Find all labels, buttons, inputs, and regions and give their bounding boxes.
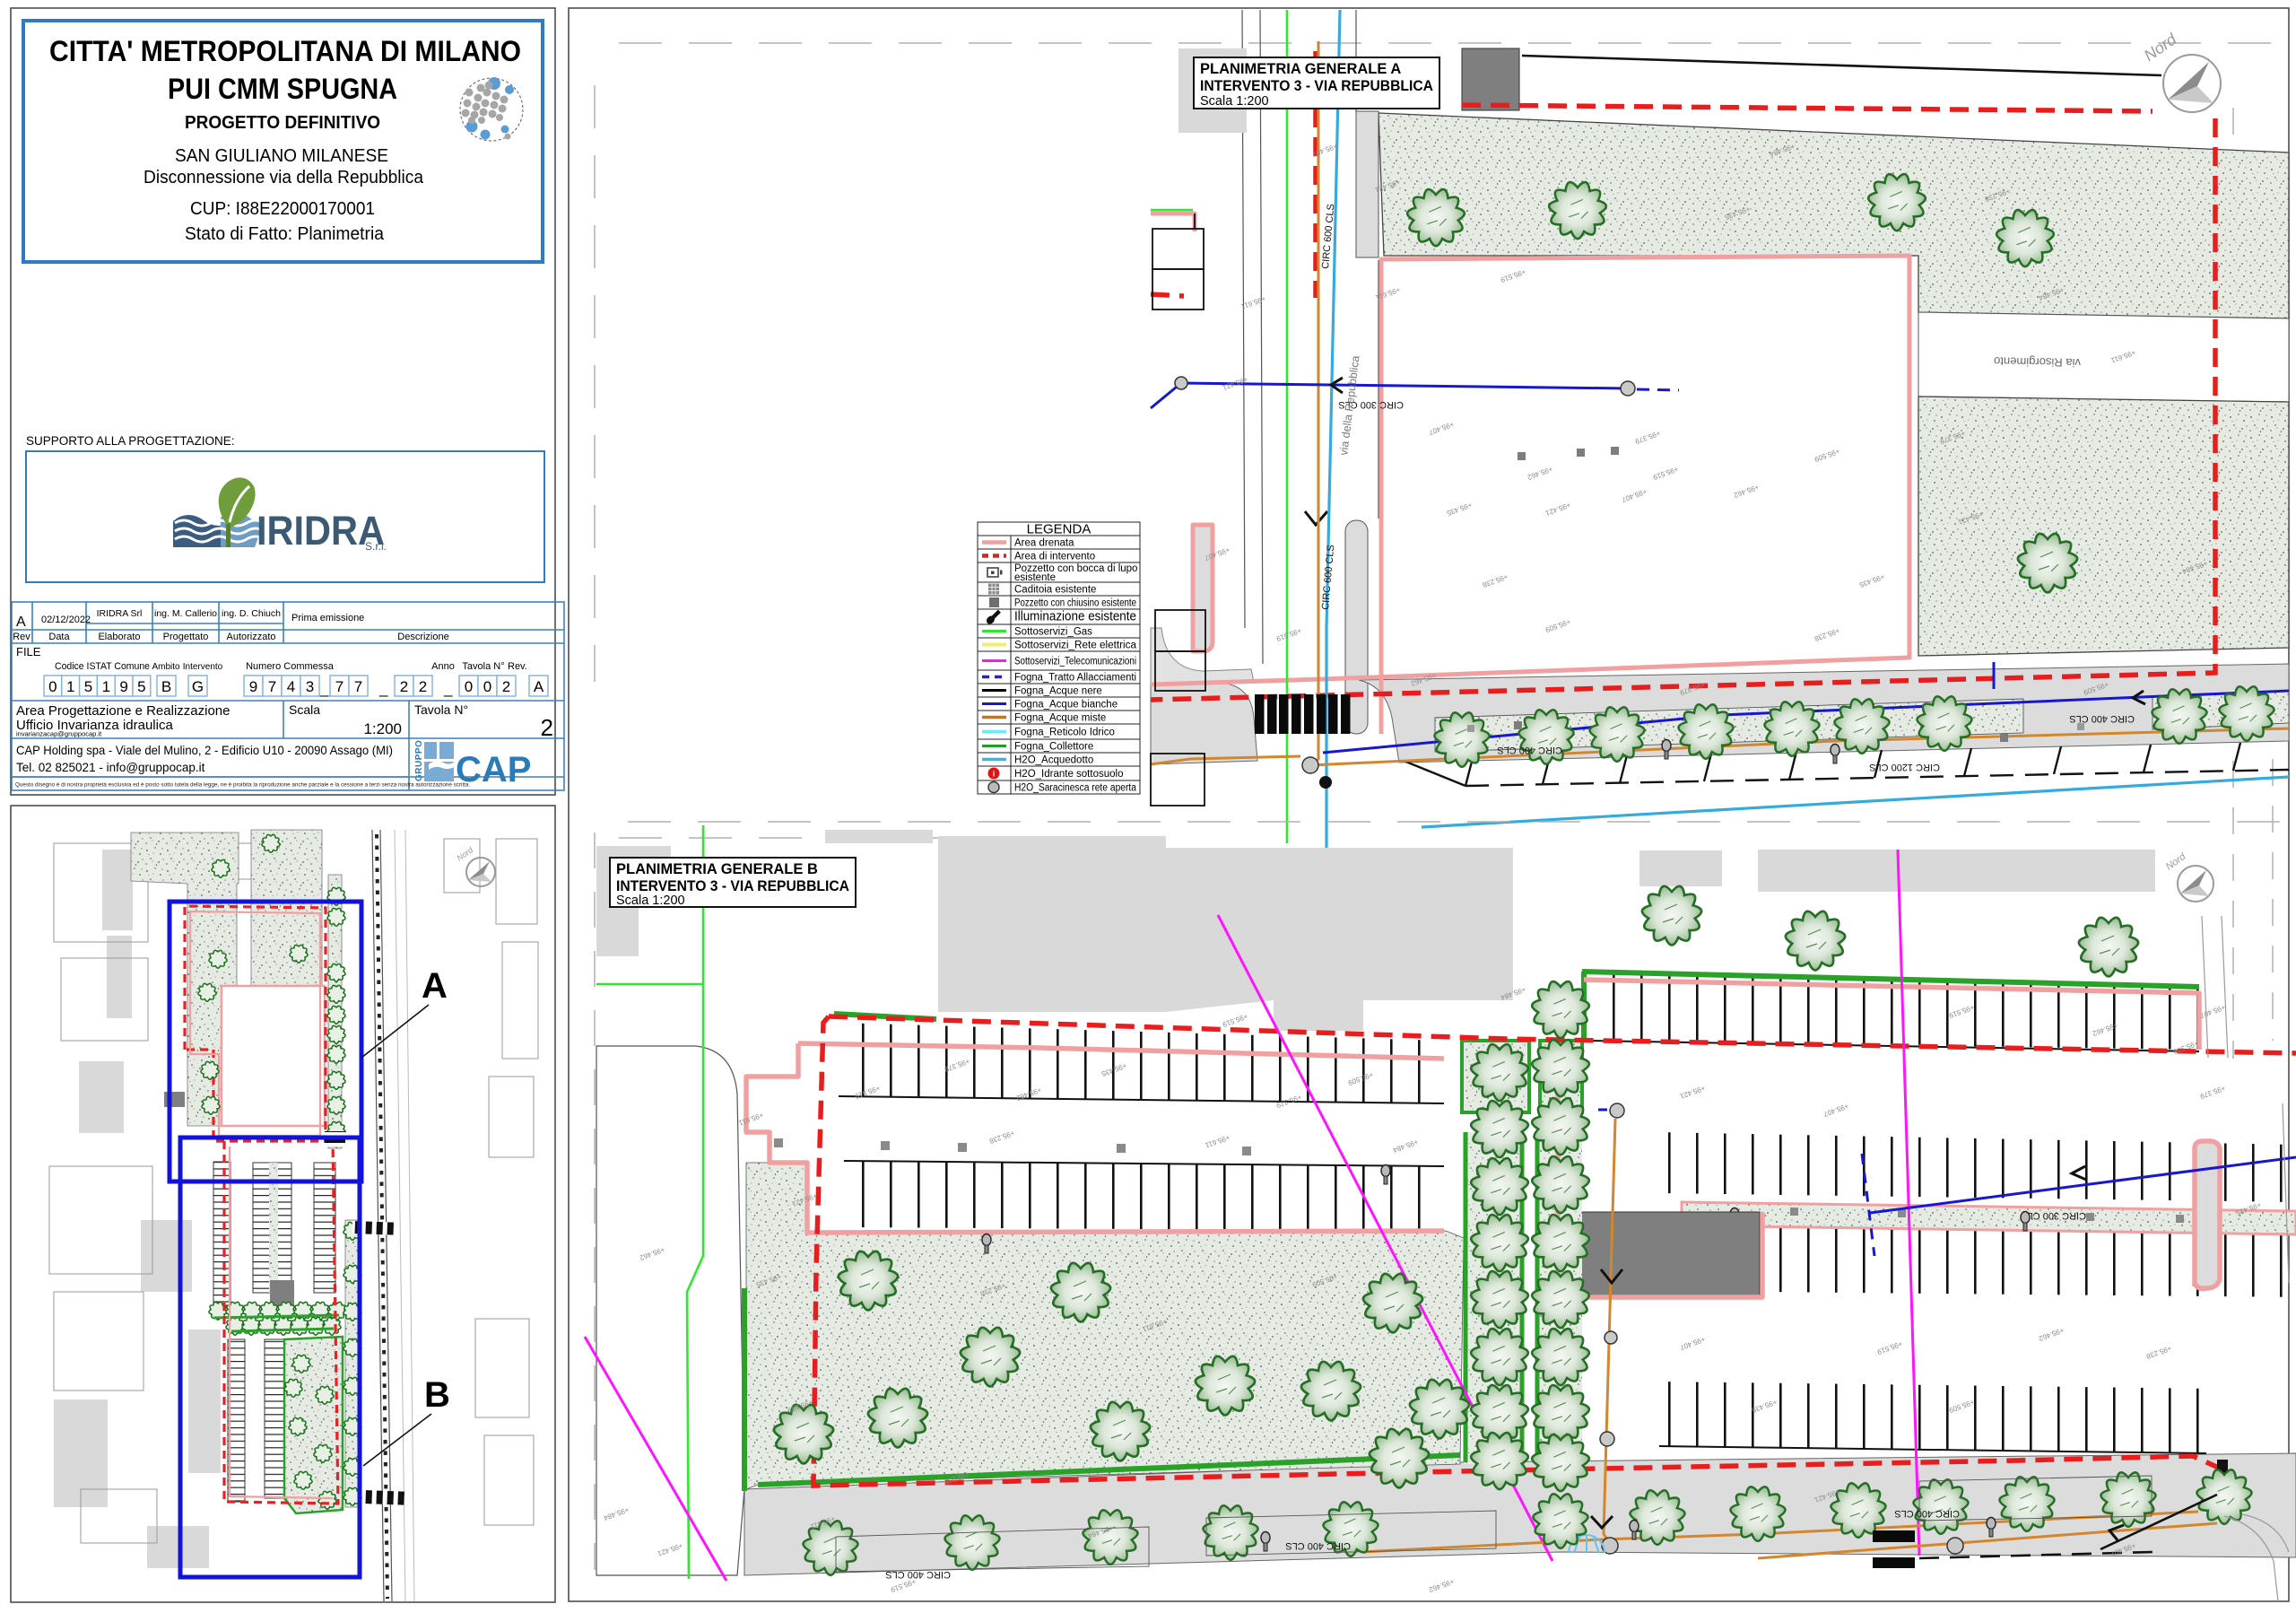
svg-text:9: 9 — [249, 678, 257, 695]
svg-text:Area Progettazione e Realizzaz: Area Progettazione e Realizzazione — [16, 703, 230, 719]
svg-text:Scala 1:200: Scala 1:200 — [616, 894, 685, 908]
svg-text:esistente: esistente — [1014, 572, 1056, 583]
svg-text:A: A — [534, 678, 544, 695]
svg-text:5: 5 — [137, 678, 145, 695]
svg-text:B: B — [424, 1375, 450, 1415]
svg-text:0: 0 — [465, 678, 473, 695]
svg-text:Prima emissione: Prima emissione — [291, 613, 364, 623]
svg-text:CIRC 300 CLS: CIRC 300 CLS — [2021, 1210, 2086, 1221]
svg-text:Area di intervento: Area di intervento — [1014, 552, 1095, 562]
svg-text:H2O_Saracinesca rete aperta: H2O_Saracinesca rete aperta — [1014, 783, 1137, 794]
svg-text:Illuminazione esistente: Illuminazione esistente — [1014, 610, 1136, 624]
svg-text:B: B — [161, 678, 171, 695]
svg-text:Intervento: Intervento — [183, 662, 223, 672]
svg-text:CIRC 400 CLS: CIRC 400 CLS — [1285, 1540, 1351, 1551]
svg-text:A: A — [16, 615, 26, 630]
svg-text:FILE: FILE — [16, 645, 41, 658]
svg-text:INTERVENTO 3 - VIA REPUBBLICA: INTERVENTO 3 - VIA REPUBBLICA — [1200, 78, 1433, 94]
svg-text:ing. M. Callerio: ing. M. Callerio — [154, 608, 217, 619]
svg-text:SUPPORTO ALLA PROGETTAZIONE:: SUPPORTO ALLA PROGETTAZIONE: — [26, 434, 235, 448]
svg-text:Autorizzato: Autorizzato — [226, 632, 275, 642]
svg-text:Sottoservizi_Telecomunicazioni: Sottoservizi_Telecomunicazioni — [1014, 657, 1136, 667]
svg-text:7: 7 — [268, 678, 276, 695]
svg-text:2: 2 — [400, 678, 408, 695]
svg-text:_: _ — [443, 680, 453, 697]
svg-text:Scala 1:200: Scala 1:200 — [1200, 94, 1269, 109]
svg-text:Fogna_Acque nere: Fogna_Acque nere — [1014, 686, 1102, 697]
svg-text:Data: Data — [48, 632, 70, 642]
svg-text:CAP Holding spa - Viale del Mu: CAP Holding spa - Viale del Mulino, 2 - … — [16, 743, 393, 757]
svg-text:Descrizione: Descrizione — [397, 632, 448, 642]
svg-text:2: 2 — [419, 678, 427, 695]
svg-text:H2O_Acquedotto: H2O_Acquedotto — [1014, 755, 1093, 766]
svg-text:invarianzacap@gruppocap.it: invarianzacap@gruppocap.it — [16, 730, 102, 738]
svg-text:2: 2 — [541, 714, 553, 741]
svg-text:H2O_Idrante sottosuolo: H2O_Idrante sottosuolo — [1014, 769, 1123, 780]
svg-text:5: 5 — [84, 678, 92, 695]
svg-text:CITTA' METROPOLITANA DI MILANO: CITTA' METROPOLITANA DI MILANO — [49, 35, 521, 67]
svg-text:CIRC 1200 CLS: CIRC 1200 CLS — [1869, 762, 1940, 772]
svg-text:Area drenata: Area drenata — [1014, 538, 1074, 549]
svg-text:ing. D. Chiuch: ing. D. Chiuch — [222, 608, 281, 619]
svg-text:Sottoservizi_Gas: Sottoservizi_Gas — [1014, 627, 1092, 638]
svg-text:Anno: Anno — [431, 661, 455, 672]
svg-text:7: 7 — [335, 678, 344, 695]
svg-text:CUP: I88E22000170001: CUP: I88E22000170001 — [190, 198, 375, 219]
svg-text:Fogna_Tratto Allacciamenti: Fogna_Tratto Allacciamenti — [1014, 673, 1136, 684]
svg-text:Tavola N°: Tavola N° — [414, 702, 468, 717]
svg-text:S.r.l.: S.r.l. — [365, 540, 387, 553]
svg-text:02/12/2022: 02/12/2022 — [41, 615, 91, 625]
svg-text:PROGETTO DEFINITIVO: PROGETTO DEFINITIVO — [185, 113, 380, 133]
svg-text:LEGENDA: LEGENDA — [1027, 522, 1091, 537]
svg-text:1: 1 — [102, 678, 110, 695]
svg-text:A: A — [422, 966, 448, 1006]
svg-text:G: G — [192, 678, 204, 695]
svg-text:Scala: Scala — [289, 702, 320, 717]
svg-text:Pozzetto con chiusino esistent: Pozzetto con chiusino esistente — [1014, 598, 1136, 609]
svg-text:INTERVENTO 3 - VIA REPUBBLICA: INTERVENTO 3 - VIA REPUBBLICA — [616, 878, 849, 894]
svg-text:0: 0 — [483, 678, 491, 695]
svg-text:9: 9 — [119, 678, 127, 695]
svg-text:GRUPPO: GRUPPO — [414, 740, 424, 781]
svg-text:Elaborato: Elaborato — [98, 632, 140, 642]
svg-text:i: i — [993, 770, 996, 779]
svg-text:Fogna_Collettore: Fogna_Collettore — [1014, 742, 1093, 753]
svg-text:0: 0 — [48, 678, 57, 695]
svg-text:Numero Commessa: Numero Commessa — [246, 661, 335, 672]
svg-text:Stato di Fatto: Planimetria: Stato di Fatto: Planimetria — [185, 223, 385, 244]
svg-text:CIRC 400 CLS: CIRC 400 CLS — [885, 1569, 951, 1580]
svg-text:Fogna_Acque bianche: Fogna_Acque bianche — [1014, 700, 1118, 711]
svg-text:Questo disegno è di nostra pro: Questo disegno è di nostra proprietà esc… — [15, 782, 470, 789]
svg-text:Disconnessione via della Repub: Disconnessione via della Repubblica — [143, 167, 424, 187]
svg-text:Progettato: Progettato — [163, 632, 209, 642]
svg-text:Ambito: Ambito — [152, 662, 180, 672]
svg-text:CAP: CAP — [456, 750, 531, 789]
svg-text:4: 4 — [287, 678, 295, 695]
svg-text:Caditoia esistente: Caditoia esistente — [1014, 585, 1096, 596]
svg-text:CIRC 400 CLS: CIRC 400 CLS — [2069, 713, 2135, 724]
svg-text:Fogna_Acque miste: Fogna_Acque miste — [1014, 713, 1106, 724]
svg-text:_: _ — [378, 680, 388, 697]
svg-text:2: 2 — [502, 678, 510, 695]
svg-text:Rev: Rev — [13, 632, 30, 642]
svg-text:_: _ — [319, 680, 329, 697]
svg-text:PLANIMETRIA GENERALE B: PLANIMETRIA GENERALE B — [616, 861, 818, 877]
svg-text:CIRC 400 CLS: CIRC 400 CLS — [1497, 745, 1562, 755]
svg-text:Sottoservizi_Rete elettrica: Sottoservizi_Rete elettrica — [1014, 641, 1137, 651]
svg-text:1:200: 1:200 — [363, 720, 402, 737]
svg-text:3: 3 — [306, 678, 314, 695]
svg-text:Tavola N°: Tavola N° — [462, 661, 504, 672]
svg-text:IRIDRA Srl: IRIDRA Srl — [97, 608, 143, 619]
svg-text:via Risorgimento: via Risorgimento — [1994, 354, 2081, 370]
svg-text:CIRC 400 CLS: CIRC 400 CLS — [1894, 1508, 1960, 1519]
svg-text:Tel. 02 825021 - info@gruppoca: Tel. 02 825021 - info@gruppocap.it — [16, 761, 205, 774]
svg-text:Rev.: Rev. — [508, 661, 527, 672]
svg-text:PUI CMM SPUGNA: PUI CMM SPUGNA — [168, 73, 397, 105]
svg-text:SAN GIULIANO MILANESE: SAN GIULIANO MILANESE — [175, 145, 388, 166]
svg-text:1: 1 — [66, 678, 74, 695]
svg-text:7: 7 — [354, 678, 362, 695]
svg-text:PLANIMETRIA GENERALE A: PLANIMETRIA GENERALE A — [1200, 61, 1401, 77]
svg-text:Fogna_Reticolo Idrico: Fogna_Reticolo Idrico — [1014, 728, 1115, 738]
svg-text:Codice ISTAT Comune: Codice ISTAT Comune — [55, 661, 150, 672]
